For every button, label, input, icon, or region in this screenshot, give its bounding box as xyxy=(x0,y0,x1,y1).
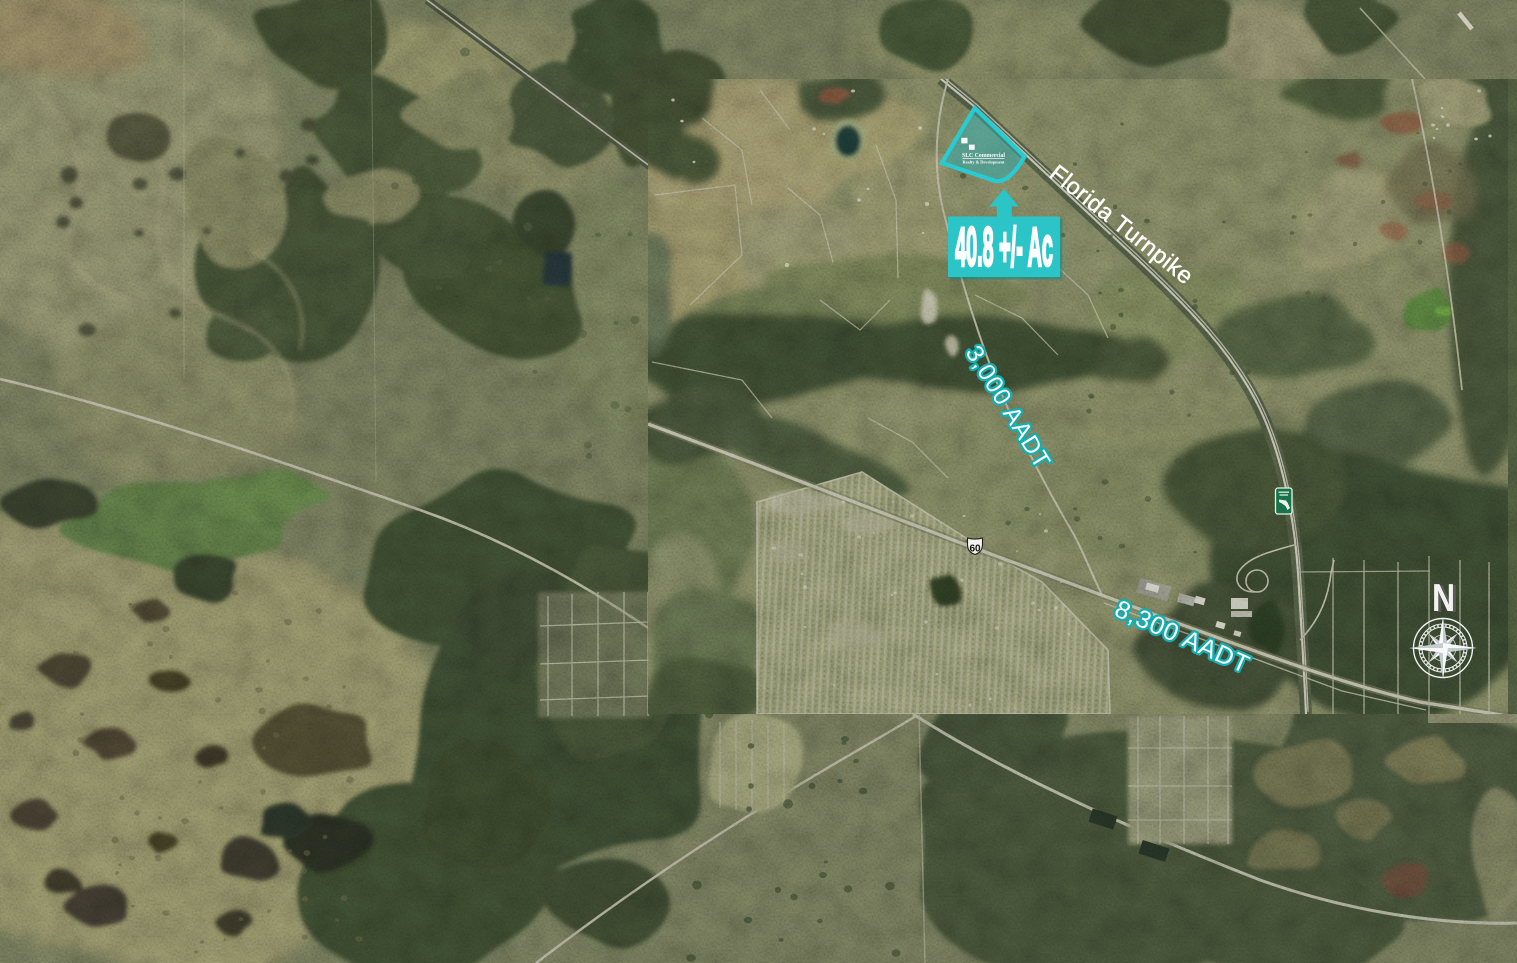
svg-text:Florida Turnpike: Florida Turnpike xyxy=(1045,160,1199,290)
svg-text:60: 60 xyxy=(969,544,981,555)
svg-text:40.8 +/- Ac: 40.8 +/- Ac xyxy=(955,216,1053,277)
svg-text:N: N xyxy=(1432,576,1455,620)
svg-text:8,300 AADT: 8,300 AADT xyxy=(1111,595,1255,679)
svg-text:3,000 AADT: 3,000 AADT xyxy=(960,341,1056,474)
svg-text:SLC Commercial: SLC Commercial xyxy=(962,152,1005,159)
svg-text:Realty & Development: Realty & Development xyxy=(963,159,1006,164)
